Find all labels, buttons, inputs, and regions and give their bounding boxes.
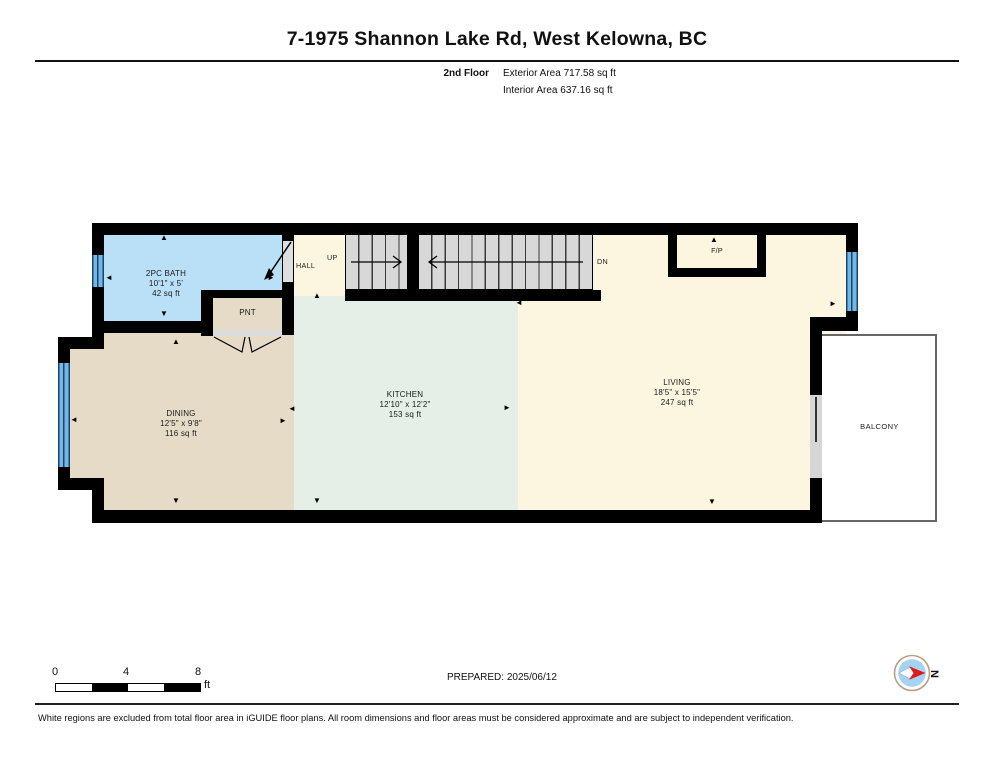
wall-bath-bottom xyxy=(92,321,213,333)
kitchen-label: KITCHEN 12'10" x 12'2" 153 sq ft xyxy=(345,390,465,420)
scale-tick-4: 4 xyxy=(120,666,132,678)
pantry-label: PNT xyxy=(213,308,282,318)
floorplan-page: 7-1975 Shannon Lake Rd, West Kelowna, BC… xyxy=(0,0,994,768)
dim-arrow-dining-left xyxy=(70,416,78,424)
compass-icon: N xyxy=(891,651,951,699)
scale-tick-0: 0 xyxy=(49,666,61,678)
interior-area-label: Interior Area 637.16 sq ft xyxy=(503,85,613,96)
header-divider xyxy=(35,60,959,62)
dim-arrow-kitchen-down xyxy=(313,497,321,505)
pantry-door-opening xyxy=(213,330,282,336)
dim-arrow-living-right xyxy=(829,300,837,308)
dim-arrow-dining-down xyxy=(172,497,180,505)
hall-label: HALL xyxy=(296,261,315,270)
scale-bar xyxy=(55,683,201,692)
dim-arrow-kitchen-left xyxy=(288,405,296,413)
dining-dims: 12'5" x 9'8" xyxy=(121,419,241,429)
dim-arrow-bath-right xyxy=(267,274,275,282)
fireplace-label: F/P xyxy=(697,246,737,256)
dim-arrow-living-down xyxy=(708,498,716,506)
wall-stairs-divider xyxy=(408,233,418,301)
living-label: LIVING 18'5" x 15'5" 247 sq ft xyxy=(617,378,737,408)
floor-label: 2nd Floor xyxy=(380,68,489,79)
dining-name: DINING xyxy=(121,409,241,419)
living-window xyxy=(846,252,858,311)
kitchen-name: KITCHEN xyxy=(345,390,465,400)
dim-arrow-living-left xyxy=(515,299,523,307)
balcony-name: BALCONY xyxy=(822,422,937,432)
living-area: 247 sq ft xyxy=(617,398,737,408)
prepared-date: PREPARED: 2025/06/12 xyxy=(447,672,557,683)
compass-north-label: N xyxy=(928,670,940,678)
stairs-down xyxy=(418,234,593,290)
scale-unit-label: ft xyxy=(204,679,210,691)
wall-fireplace-bottom xyxy=(668,268,766,277)
balcony-label: BALCONY xyxy=(822,422,937,432)
wall-stairs-bottom xyxy=(345,290,601,301)
bath-door-opening xyxy=(283,241,293,282)
dim-arrow-dining-up xyxy=(172,338,180,346)
living-dims: 18'5" x 15'5" xyxy=(617,388,737,398)
stairs-down-label: DN xyxy=(597,257,608,266)
stairs-up-label: UP xyxy=(327,253,338,262)
pantry-name: PNT xyxy=(213,308,282,318)
sliding-door-panel-line xyxy=(815,397,817,442)
kitchen-area: 153 sq ft xyxy=(345,410,465,420)
dim-arrow-kitchen-up xyxy=(313,292,321,300)
dim-arrow-bath-down xyxy=(160,310,168,318)
exterior-area-label: Exterior Area 717.58 sq ft xyxy=(503,68,616,79)
bath-area: 42 sq ft xyxy=(106,289,226,299)
fireplace-name: F/P xyxy=(697,246,737,256)
dining-window xyxy=(58,363,70,467)
dining-label: DINING 12'5" x 9'8" 116 sq ft xyxy=(121,409,241,439)
dim-arrow-bath-up xyxy=(160,234,168,242)
bath-dims: 10'1" x 5' xyxy=(106,279,226,289)
bath-window xyxy=(92,255,104,287)
dining-area: 116 sq ft xyxy=(121,429,241,439)
kitchen-dims: 12'10" x 12'2" xyxy=(345,400,465,410)
stairs-up xyxy=(345,234,408,290)
dim-arrow-kitchen-right xyxy=(503,404,511,412)
wall-bottom xyxy=(92,510,822,523)
bath-name: 2PC BATH xyxy=(106,269,226,279)
footer-divider xyxy=(35,703,959,705)
bath-label: 2PC BATH 10'1" x 5' 42 sq ft xyxy=(106,269,226,299)
dim-arrow-fireplace-up xyxy=(710,236,718,244)
dim-arrow-dining-right xyxy=(279,417,287,425)
page-title: 7-1975 Shannon Lake Rd, West Kelowna, BC xyxy=(0,28,994,51)
scale-tick-8: 8 xyxy=(192,666,204,678)
living-name: LIVING xyxy=(617,378,737,388)
disclaimer-text: White regions are excluded from total fl… xyxy=(38,713,958,723)
